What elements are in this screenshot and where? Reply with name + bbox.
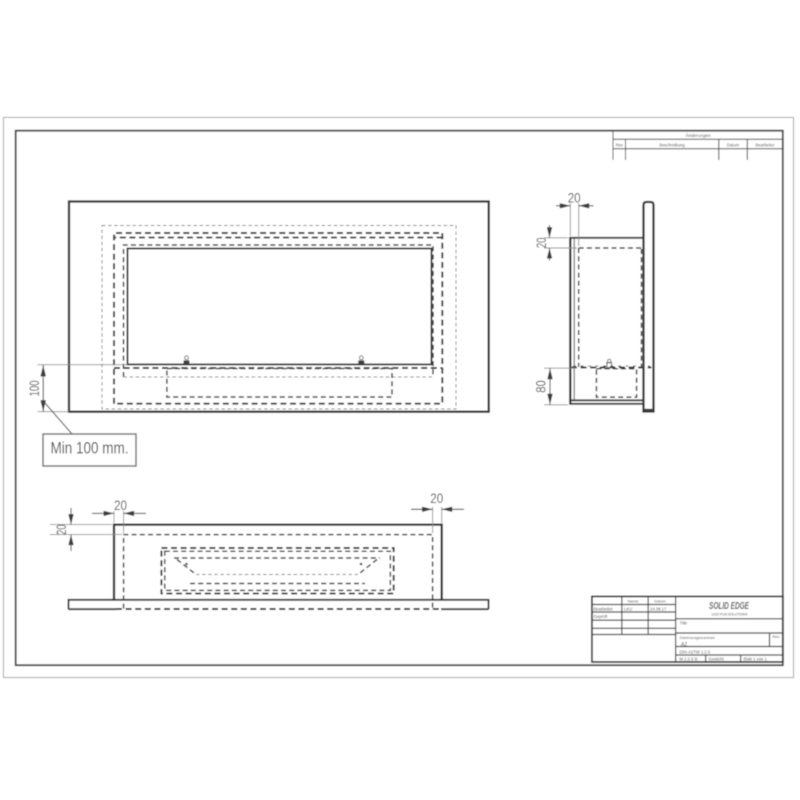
svg-text:A2: A2 bbox=[681, 642, 687, 648]
svg-text:SOLID EDGE: SOLID EDGE bbox=[709, 600, 750, 612]
svg-text:80: 80 bbox=[533, 380, 548, 393]
svg-text:Title: Title bbox=[680, 621, 688, 626]
svg-text:20: 20 bbox=[114, 498, 127, 513]
svg-text:Bearbeiter: Bearbeiter bbox=[755, 143, 775, 148]
svg-text:Datum: Datum bbox=[727, 143, 740, 148]
svg-text:Min 100 mm.: Min 100 mm. bbox=[51, 439, 129, 458]
svg-text:UGS PLM SOLUTIONS: UGS PLM SOLUTIONS bbox=[712, 612, 749, 616]
svg-text:24.08.17: 24.08.17 bbox=[650, 607, 667, 612]
svg-text:Gewicht: Gewicht bbox=[709, 657, 725, 662]
svg-text:LKU: LKU bbox=[624, 607, 632, 612]
svg-text:M 1:2.5 B: M 1:2.5 B bbox=[680, 657, 698, 662]
svg-text:Zeichnungsnummer: Zeichnungsnummer bbox=[680, 635, 716, 640]
svg-text:Rev: Rev bbox=[773, 634, 780, 639]
svg-text:Änderungen: Änderungen bbox=[685, 132, 710, 138]
svg-text:20: 20 bbox=[534, 238, 549, 249]
svg-text:Bearbeitet: Bearbeitet bbox=[594, 607, 614, 612]
svg-text:20: 20 bbox=[568, 190, 581, 205]
svg-text:20: 20 bbox=[54, 524, 69, 535]
svg-text:Blatt 1 von 1: Blatt 1 von 1 bbox=[744, 657, 768, 662]
svg-text:Datum: Datum bbox=[654, 599, 666, 604]
svg-text:100: 100 bbox=[27, 380, 42, 396]
svg-text:Geprüft: Geprüft bbox=[594, 614, 609, 619]
svg-text:DIN-A2TW 1:2.5: DIN-A2TW 1:2.5 bbox=[680, 650, 711, 655]
svg-text:Beschreibung: Beschreibung bbox=[659, 143, 685, 148]
svg-text:Name: Name bbox=[628, 599, 639, 604]
svg-text:Rev: Rev bbox=[616, 143, 624, 148]
svg-text:20: 20 bbox=[430, 491, 443, 506]
